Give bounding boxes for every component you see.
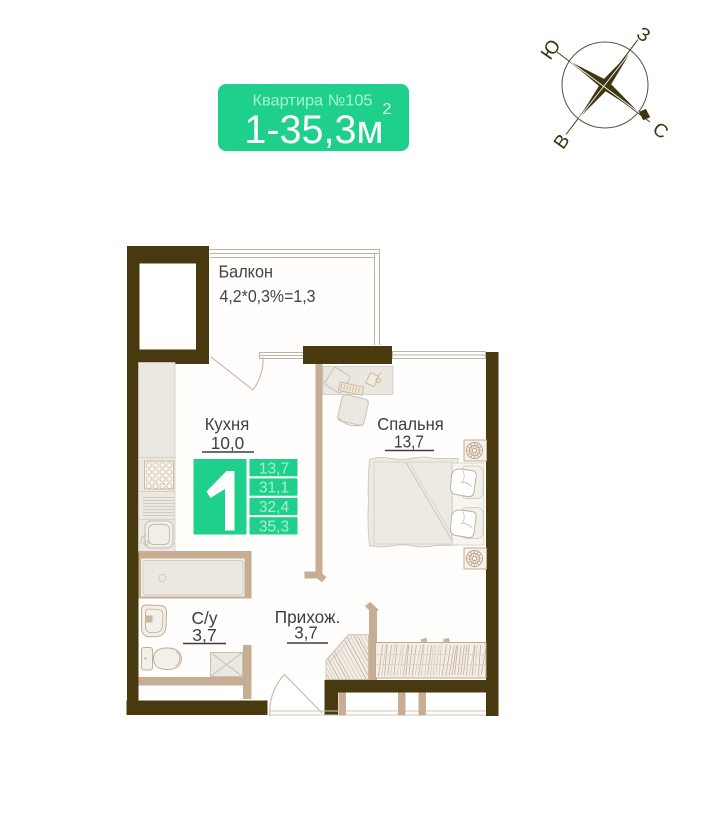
- svg-text:В: В: [550, 131, 574, 153]
- svg-text:Балкон: Балкон: [219, 262, 274, 282]
- svg-text:3,7: 3,7: [294, 623, 318, 643]
- svg-text:31,1: 31,1: [259, 480, 289, 497]
- svg-text:2: 2: [383, 101, 392, 118]
- svg-text:4,2*0,3%=1,3: 4,2*0,3%=1,3: [220, 286, 316, 306]
- svg-text:32,4: 32,4: [259, 499, 290, 516]
- svg-text:10,0: 10,0: [211, 433, 245, 453]
- svg-text:13,7: 13,7: [394, 432, 424, 452]
- svg-text:С: С: [648, 119, 671, 144]
- svg-text:13,7: 13,7: [259, 460, 289, 477]
- svg-text:3,7: 3,7: [192, 625, 217, 645]
- svg-text:1-35,3м: 1-35,3м: [244, 108, 383, 152]
- svg-text:З: З: [632, 23, 653, 47]
- svg-text:Кухня: Кухня: [205, 414, 250, 434]
- svg-text:35,3: 35,3: [259, 519, 289, 536]
- svg-text:Квартира №105: Квартира №105: [253, 93, 373, 110]
- svg-text:Ю: Ю: [537, 36, 565, 64]
